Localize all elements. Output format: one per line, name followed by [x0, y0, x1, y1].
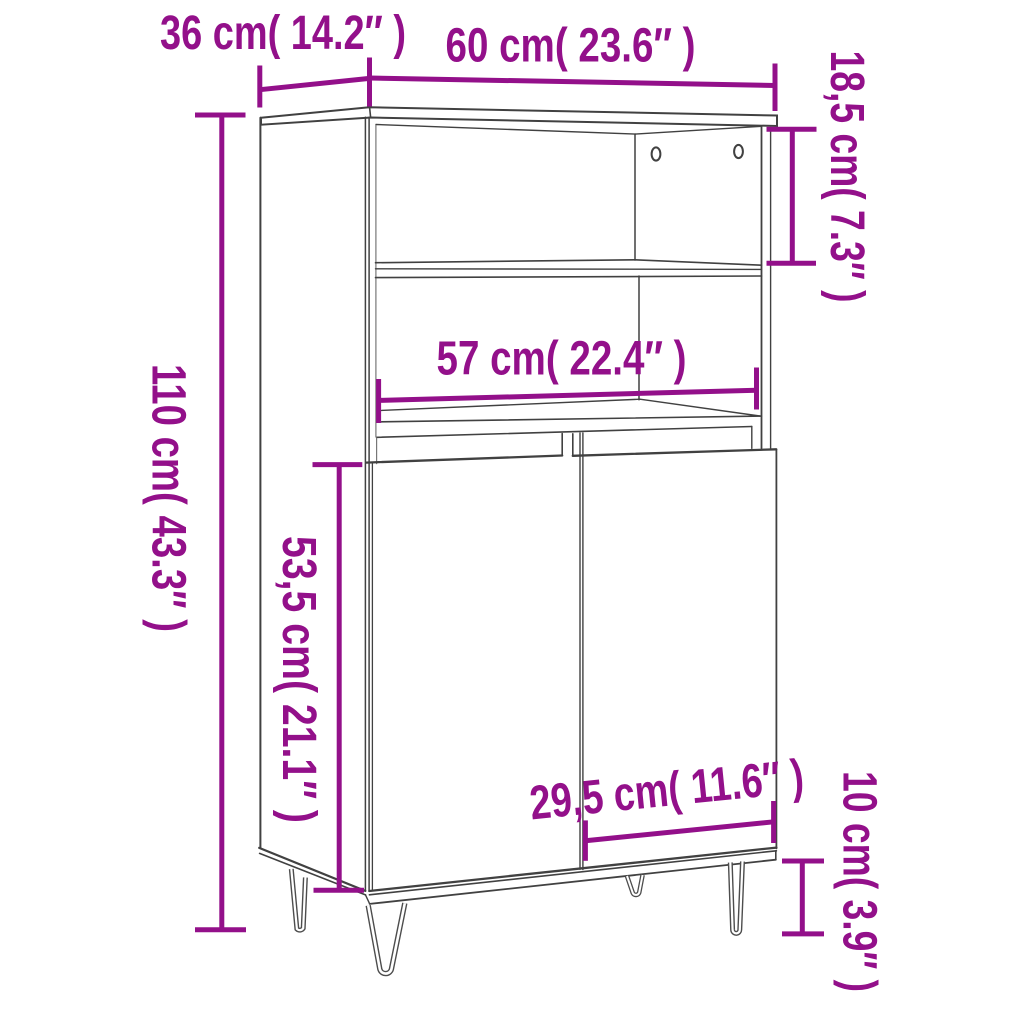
svg-text:110 cm( 43.3″ ): 110 cm( 43.3″ ): [142, 364, 195, 632]
svg-text:57 cm( 22.4″ ): 57 cm( 22.4″ ): [437, 333, 687, 386]
svg-text:18,5 cm( 7.3″ ): 18,5 cm( 7.3″ ): [820, 51, 873, 303]
svg-text:53,5 cm( 21.1″ ): 53,5 cm( 21.1″ ): [272, 536, 325, 823]
svg-text:36 cm( 14.2″ ): 36 cm( 14.2″ ): [160, 7, 406, 60]
svg-text:10 cm( 3.9″ ): 10 cm( 3.9″ ): [833, 771, 886, 992]
svg-text:60 cm( 23.6″ ): 60 cm( 23.6″ ): [446, 19, 696, 72]
